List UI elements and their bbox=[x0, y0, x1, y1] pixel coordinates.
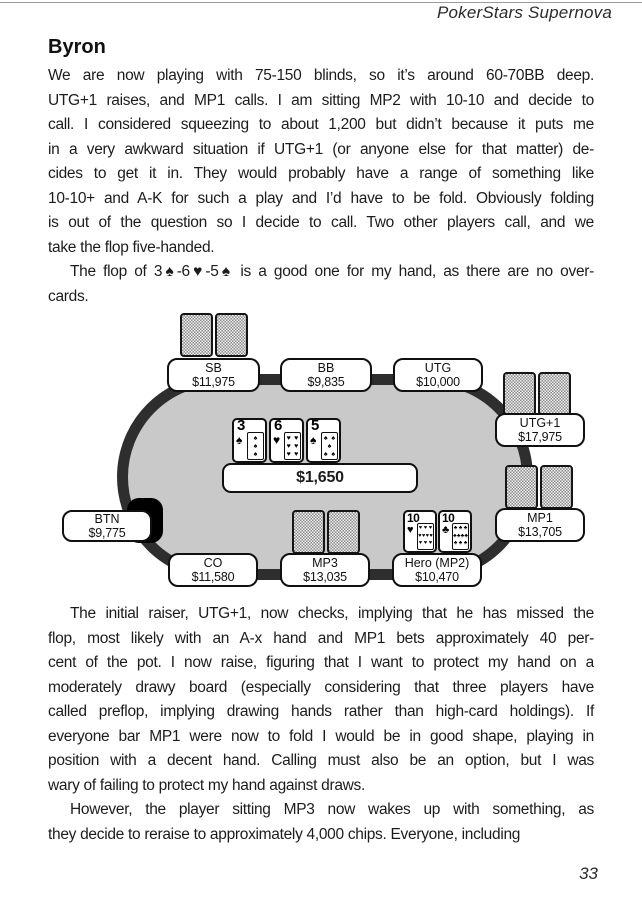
running-head: PokerStars Supernova bbox=[437, 3, 612, 23]
text-line: UTG+1 raises, and MP1 calls. I am sittin… bbox=[48, 89, 594, 114]
card-back-icon bbox=[503, 372, 536, 416]
seat-mp1: MP1 $13,705 bbox=[495, 508, 585, 542]
text-line: cent of the pot. I now raise, figuring t… bbox=[48, 651, 594, 676]
paragraph: However, the player sitting MP3 now wake… bbox=[48, 798, 594, 847]
seat-label: BTN bbox=[95, 512, 120, 527]
text-line: The initial raiser, UTG+1, now checks, i… bbox=[48, 602, 594, 627]
section-heading: Byron bbox=[48, 36, 106, 59]
text-line: is out of the question so I decide to ca… bbox=[48, 211, 594, 236]
seat-label: MP3 bbox=[312, 556, 338, 571]
text-line: in a very awkward situation if UTG+1 (or… bbox=[48, 138, 594, 163]
card-back-icon bbox=[180, 313, 213, 357]
seat-co: CO $11,580 bbox=[168, 553, 258, 587]
seat-label: SB bbox=[205, 361, 222, 376]
text-line: cides to get it in. They would probably … bbox=[48, 162, 594, 187]
text-line: take the flop five-handed. bbox=[48, 236, 594, 261]
text-line: everyone bar MP1 were now to fold I woul… bbox=[48, 725, 594, 750]
text-line: called preflop, implying drawing hands r… bbox=[48, 700, 594, 725]
card-pips: ♠♠♠ bbox=[247, 432, 264, 460]
seat-mp3: MP3 $13,035 bbox=[280, 553, 370, 587]
text-line: they decide to reraise to approximately … bbox=[48, 823, 594, 848]
spade-suit-icon: ♠ bbox=[236, 434, 242, 446]
seat-stack: $17,975 bbox=[518, 430, 562, 445]
card-back-icon bbox=[538, 372, 571, 416]
seat-stack: $11,975 bbox=[192, 375, 235, 390]
seat-stack: $10,000 bbox=[416, 375, 460, 390]
heart-suit-icon: ♥ bbox=[407, 524, 414, 536]
pot-badge: $1,650 bbox=[222, 463, 418, 493]
paragraph: The initial raiser, UTG+1, now checks, i… bbox=[48, 602, 594, 798]
seat-label: UTG+1 bbox=[520, 416, 561, 431]
text-line: flop, most likely with an A-x hand and M… bbox=[48, 627, 594, 652]
hole-cards-sb bbox=[180, 313, 248, 357]
playing-card-3s: 3 ♠ ♠♠♠ bbox=[232, 418, 267, 463]
playing-card-5s: 5 ♠ ♠♠♠♠♠ bbox=[306, 418, 341, 463]
card-pips: ♠♠♠♠♠ bbox=[321, 432, 338, 460]
card-pips: ♥♥♥♥♥♥♥♥♥♥ bbox=[417, 523, 434, 550]
hole-cards-utg1 bbox=[503, 372, 571, 416]
hole-cards-hero: 10 ♥ ♥♥♥♥♥♥♥♥♥♥ 10 ♣ ♣♣♣♣♣♣♣♣♣♣ bbox=[403, 510, 472, 553]
club-suit-icon: ♣ bbox=[442, 524, 449, 536]
card-back-icon bbox=[505, 465, 538, 509]
seat-label: CO bbox=[204, 556, 223, 571]
seat-label: UTG bbox=[425, 361, 451, 376]
seat-label: Hero (MP2) bbox=[405, 556, 470, 571]
seat-stack: $9,835 bbox=[307, 375, 344, 390]
seat-stack: $9,775 bbox=[88, 526, 125, 541]
text-line: call. I considered squeezing to about 1,… bbox=[48, 113, 594, 138]
card-back-icon bbox=[540, 465, 573, 509]
seat-hero-mp2: Hero (MP2) $10,470 bbox=[392, 553, 482, 587]
seat-utg1: UTG+1 $17,975 bbox=[495, 413, 585, 447]
card-back-icon bbox=[327, 510, 360, 554]
seat-stack: $11,580 bbox=[192, 570, 235, 585]
seat-utg: UTG $10,000 bbox=[393, 358, 483, 392]
card-rank: 5 bbox=[311, 417, 318, 434]
seat-sb: SB $11,975 bbox=[167, 358, 260, 392]
card-back-icon bbox=[292, 510, 325, 554]
card-back-icon bbox=[215, 313, 248, 357]
text-line: The flop of 3♠-6♥-5♠ is a good one for m… bbox=[48, 260, 594, 285]
text-line: position with a decent hand. Calling mus… bbox=[48, 749, 594, 774]
hole-cards-mp1 bbox=[505, 465, 573, 509]
board-cards: 3 ♠ ♠♠♠ 6 ♥ ♥♥♥♥♥♥ 5 ♠ ♠♠♠♠♠ bbox=[232, 418, 341, 463]
text-line: However, the player sitting MP3 now wake… bbox=[48, 798, 594, 823]
seat-label: MP1 bbox=[527, 511, 553, 526]
seat-btn: BTN $9,775 bbox=[62, 510, 152, 542]
page-number: 33 bbox=[579, 864, 598, 884]
playing-card-10h: 10 ♥ ♥♥♥♥♥♥♥♥♥♥ bbox=[403, 510, 437, 553]
text-line: 10-10+ and A-K for such a play and I’d h… bbox=[48, 187, 594, 212]
card-pips: ♣♣♣♣♣♣♣♣♣♣ bbox=[452, 523, 469, 550]
poker-table-diagram: 10 ♥ ♥♥♥♥♥♥♥♥♥♥ 10 ♣ ♣♣♣♣♣♣♣♣♣♣ 3 ♠ ♠♠♠ … bbox=[0, 300, 642, 600]
spade-suit-icon: ♠ bbox=[310, 434, 316, 446]
seat-label: BB bbox=[318, 361, 335, 376]
text-line: wary of failing to protect my hand again… bbox=[48, 774, 594, 799]
hole-cards-mp3 bbox=[292, 510, 360, 554]
book-page: PokerStars Supernova Byron We are now pl… bbox=[0, 0, 642, 900]
playing-card-10c: 10 ♣ ♣♣♣♣♣♣♣♣♣♣ bbox=[438, 510, 472, 553]
seat-stack: $13,705 bbox=[518, 525, 562, 540]
heart-suit-icon: ♥ bbox=[273, 434, 280, 446]
card-rank: 3 bbox=[237, 417, 244, 434]
paragraph: We are now playing with 75-150 blinds, s… bbox=[48, 64, 594, 260]
seat-bb: BB $9,835 bbox=[280, 358, 372, 392]
seat-stack: $10,470 bbox=[415, 570, 459, 585]
seat-stack: $13,035 bbox=[303, 570, 347, 585]
playing-card-6h: 6 ♥ ♥♥♥♥♥♥ bbox=[269, 418, 304, 463]
text-line: We are now playing with 75-150 blinds, s… bbox=[48, 64, 594, 89]
text-line: moderately drawy board (especially consi… bbox=[48, 676, 594, 701]
card-pips: ♥♥♥♥♥♥ bbox=[284, 432, 301, 460]
card-rank: 6 bbox=[274, 417, 281, 434]
